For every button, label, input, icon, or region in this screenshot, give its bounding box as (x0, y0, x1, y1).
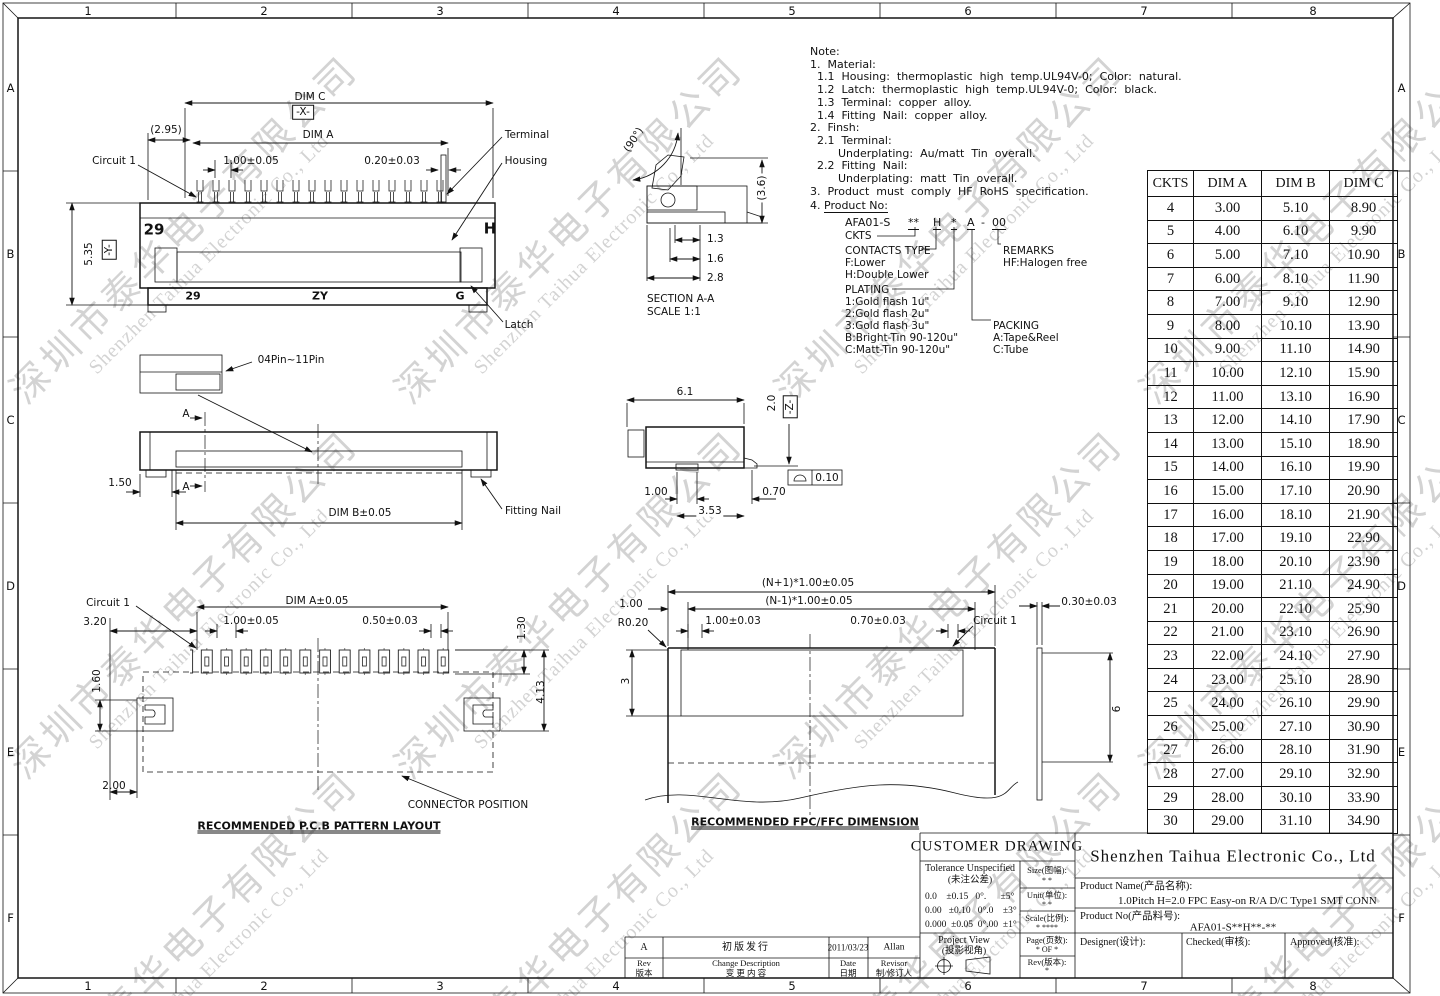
unit-value: * * (1042, 901, 1052, 909)
front-mark-29b: 29 (185, 291, 200, 302)
top-dim-150: 1.50 (108, 478, 131, 489)
pcb-connector-position: CONNECTOR POSITION (408, 800, 529, 811)
table-row: 2827.0029.1032.90 (1148, 763, 1398, 787)
table-cell: 20 (1148, 574, 1194, 598)
table-row: 1615.0017.1020.90 (1148, 480, 1398, 504)
zone-label-F: F (7, 911, 14, 925)
table-cell: 22.00 (1194, 645, 1262, 669)
table-cell: 13.10 (1262, 385, 1330, 409)
zone-label-8: 8 (1309, 4, 1316, 18)
table-cell: 34.90 (1330, 810, 1398, 834)
front-pitch: 1.00±0.05 (223, 156, 279, 167)
unit-label: Unit(单位): (1027, 891, 1067, 900)
top-section-a1: A (182, 409, 189, 420)
legend-packing-a: A:Tape&Reel (993, 333, 1059, 344)
product-code-remarks: 00 (992, 216, 1006, 230)
table-row: 1817.0019.1022.90 (1148, 527, 1398, 551)
table-cell: 14.10 (1262, 409, 1330, 433)
table-cell: 14.90 (1330, 338, 1398, 362)
table-cell: 29.90 (1330, 692, 1398, 716)
top-pins-label: 04Pin~11Pin (258, 355, 325, 366)
fpc-dim-100: 1.00 (619, 599, 642, 610)
table-row: 43.005.108.90 (1148, 197, 1398, 221)
table-cell: 17.90 (1330, 409, 1398, 433)
pcb-dim-320: 3.20 (83, 617, 106, 628)
zone-label-E: E (7, 745, 14, 759)
fpc-dim-6: 6 (1112, 706, 1123, 713)
table-cell: 23.00 (1194, 668, 1262, 692)
table-cell: 9.10 (1262, 291, 1330, 315)
section-scale: SCALE 1:1 (647, 307, 701, 318)
table-row: 65.007.1010.90 (1148, 244, 1398, 268)
table-cell: 15.90 (1330, 362, 1398, 386)
customer-drawing-title: CUSTOMER DRAWING (911, 840, 1083, 855)
table-cell: 21 (1148, 598, 1194, 622)
table-cell: 29 (1148, 786, 1194, 810)
legend-contacts-type: CONTACTS TYPE (845, 246, 931, 257)
tolerance-row-3: 0.000 ±0.05 0°.00 ±1° (925, 921, 1017, 931)
table-row: 1716.0018.1021.90 (1148, 503, 1398, 527)
zone-label-C: C (6, 413, 14, 427)
pcb-pad-width: 0.50±0.03 (362, 616, 418, 627)
table-row: 1110.0012.1015.90 (1148, 362, 1398, 386)
pcb-dim-200: 2.00 (102, 781, 125, 792)
table-cell: 21.90 (1330, 503, 1398, 527)
section-dim-13: 1.3 (707, 234, 724, 245)
zone-label-1: 1 (84, 4, 91, 18)
table-row: 2120.0022.1025.90 (1148, 598, 1398, 622)
product-no-label: Product No(产品料号): (1080, 912, 1180, 923)
legend-remarks-hf: HF:Halogen free (1003, 258, 1087, 269)
table-cell: 24.10 (1262, 645, 1330, 669)
table-cell: 16.10 (1262, 456, 1330, 480)
fpc-r020: R0.20 (618, 618, 649, 629)
table-cell: 10.90 (1330, 244, 1398, 268)
table-header-cell: DIM B (1262, 171, 1330, 197)
pcb-pitch: 1.00±0.05 (223, 616, 279, 627)
table-cell: 15.00 (1194, 480, 1262, 504)
zone-label-5: 5 (788, 979, 795, 993)
table-row: 2322.0024.1027.90 (1148, 645, 1398, 669)
dimension-table: CKTSDIM ADIM BDIM C43.005.108.9054.006.1… (1147, 170, 1398, 834)
rev-entry-date: 2011/03/23 (828, 944, 869, 953)
front-circuit1: Circuit 1 (92, 156, 136, 167)
table-row: 1312.0014.1017.90 (1148, 409, 1398, 433)
table-cell: 5.10 (1262, 197, 1330, 221)
table-cell: 25 (1148, 692, 1194, 716)
table-cell: 20.00 (1194, 598, 1262, 622)
front-dim-a: DIM A (303, 130, 334, 141)
size-label: Size(图幅): (1027, 866, 1067, 875)
table-cell: 23.90 (1330, 550, 1398, 574)
table-cell: 19 (1148, 550, 1194, 574)
table-cell: 15 (1148, 456, 1194, 480)
table-header-cell: DIM C (1330, 171, 1398, 197)
table-cell: 19.10 (1262, 527, 1330, 551)
side-dim-353: 3.53 (696, 506, 723, 517)
rev-entry-rev: A (640, 943, 647, 953)
fpc-title: RECOMMENDED FPC/FFC DIMENSION (691, 817, 919, 830)
scale-label: Scale(比例): (1025, 914, 1068, 923)
table-cell: 30 (1148, 810, 1194, 834)
table-cell: 9 (1148, 314, 1194, 338)
company-name: Shenzhen Taihua Electronic Co., Ltd (1090, 848, 1376, 865)
front-mark-h: H (484, 222, 497, 237)
table-cell: 16.90 (1330, 385, 1398, 409)
table-row: 2524.0026.1029.90 (1148, 692, 1398, 716)
table-cell: 7 (1148, 267, 1194, 291)
fpc-pitch: 1.00±0.03 (705, 616, 761, 627)
zone-label-1: 1 (84, 979, 91, 993)
table-cell: 22.10 (1262, 598, 1330, 622)
zone-label-5: 5 (788, 4, 795, 18)
zone-label-A: A (1398, 81, 1406, 95)
legend-plating-2: 2:Gold flash 2u" (845, 309, 929, 320)
table-cell: 24 (1148, 668, 1194, 692)
table-cell: 11.90 (1330, 267, 1398, 291)
table-cell: 20.90 (1330, 480, 1398, 504)
table-cell: 7.00 (1194, 291, 1262, 315)
rev-hd-rev-cn: 版本 (635, 969, 652, 978)
table-cell: 21.10 (1262, 574, 1330, 598)
rev-hd-desc-cn: 变 更 内 容 (726, 969, 766, 978)
table-cell: 13 (1148, 409, 1194, 433)
table-cell: 19.90 (1330, 456, 1398, 480)
table-cell: 31.90 (1330, 739, 1398, 763)
legend-remarks: REMARKS (1003, 246, 1054, 257)
table-cell: 7.10 (1262, 244, 1330, 268)
table-cell: 4 (1148, 197, 1194, 221)
front-mark-29: 29 (144, 223, 165, 238)
top-fitting-nail-label: Fitting Nail (505, 506, 561, 517)
product-code-packing: A (967, 216, 975, 230)
front-mark-zy: ZY (312, 291, 328, 302)
rev-label: Rev(版本): (1028, 958, 1067, 967)
table-cell: 23.10 (1262, 621, 1330, 645)
pcb-dim-160: 1.60 (92, 669, 103, 692)
zone-label-8: 8 (1309, 979, 1316, 993)
tolerance-title-cn: (未注公差) (948, 876, 992, 886)
size-value: * * (1042, 877, 1052, 885)
zone-label-E: E (1398, 745, 1405, 759)
rev-entry-desc: 初版发行 (722, 943, 770, 953)
table-cell: 9.00 (1194, 338, 1262, 362)
table-cell: 15.10 (1262, 432, 1330, 456)
table-cell: 25.00 (1194, 716, 1262, 740)
product-no-value: AFA01-S**H**-** (1190, 923, 1277, 934)
table-cell: 10 (1148, 338, 1194, 362)
table-cell: 8.10 (1262, 267, 1330, 291)
section-dim-16: 1.6 (707, 254, 724, 265)
table-row: 3029.0031.1034.90 (1148, 810, 1398, 834)
fpc-dim-3: 3 (621, 678, 632, 685)
table-row: 2726.0028.1031.90 (1148, 739, 1398, 763)
legend-ckts: CKTS (845, 231, 871, 242)
zone-label-4: 4 (612, 4, 619, 18)
table-cell: 32.90 (1330, 763, 1398, 787)
legend-plating-1: 1:Gold flash 1u" (845, 297, 929, 308)
zone-label-D: D (1397, 579, 1406, 593)
table-cell: 25.10 (1262, 668, 1330, 692)
legend-plating-b: B:Bright-Tin 90-120u" (845, 333, 958, 344)
side-flatness-value: 0.10 (815, 473, 838, 484)
table-cell: 9.90 (1330, 220, 1398, 244)
product-code-plating: * (951, 216, 957, 230)
rev-hd-desc-en: Change Description (712, 959, 780, 968)
table-row: 2625.0027.1030.90 (1148, 716, 1398, 740)
front-latch-label: Latch (505, 320, 534, 331)
table-cell: 16.00 (1194, 503, 1262, 527)
zone-label-B: B (1398, 247, 1406, 261)
table-cell: 28 (1148, 763, 1194, 787)
side-dim-20: 2.0 (767, 395, 778, 412)
table-cell: 26.00 (1194, 739, 1262, 763)
table-cell: 17.10 (1262, 480, 1330, 504)
table-cell: 14 (1148, 432, 1194, 456)
legend-packing-c: C:Tube (993, 345, 1028, 356)
zone-label-7: 7 (1140, 979, 1147, 993)
table-cell: 17.00 (1194, 527, 1262, 551)
table-cell: 13.90 (1330, 314, 1398, 338)
table-cell: 13.00 (1194, 432, 1262, 456)
page-value: * OF * (1036, 946, 1058, 954)
table-cell: 27 (1148, 739, 1194, 763)
front-terminal-width: 0.20±0.03 (364, 156, 420, 167)
note-line: 1.4 Fitting Nail: copper alloy. (810, 110, 1182, 123)
section-dim-28: 2.8 (707, 273, 724, 284)
table-header-cell: DIM A (1194, 171, 1262, 197)
fpc-n-minus: (N-1)*1.00±0.05 (763, 596, 854, 607)
note-line: Underplating: matt Tin overall. (810, 173, 1182, 186)
drawing-sheet: 深圳市泰华电子有限公司Shenzhen Taihua Electronic Co… (0, 0, 1440, 996)
note-line: 2.1 Terminal: (810, 135, 1182, 148)
table-cell: 26.90 (1330, 621, 1398, 645)
pcb-dim-a: DIM A±0.05 (286, 596, 349, 607)
zone-label-3: 3 (436, 979, 443, 993)
front-dim-295: (2.95) (150, 125, 182, 136)
tolerance-row-2: 0.00 ±0.10 0°.0 ±3° (925, 907, 1017, 917)
front-datum-x: -X- (292, 105, 314, 120)
side-dim-100: 1.00 (644, 487, 667, 498)
project-view-label: Project View (938, 936, 990, 946)
rev-hd-revisor-en: Revisor (881, 959, 907, 968)
zone-label-3: 3 (436, 4, 443, 18)
table-cell: 18 (1148, 527, 1194, 551)
table-cell: 6.10 (1262, 220, 1330, 244)
legend-plating: PLATING (845, 285, 889, 296)
front-mark-g: G (455, 291, 464, 302)
rev-hd-revisor-cn: 制/修订人 (876, 969, 912, 978)
table-cell: 18.00 (1194, 550, 1262, 574)
designer-label: Designer(设计): (1080, 938, 1146, 948)
scale-value: * **** (1036, 924, 1058, 932)
table-cell: 12.00 (1194, 409, 1262, 433)
legend-contacts-f: F:Lower (845, 258, 885, 269)
product-code-ckts: ** (908, 216, 919, 230)
front-datum-y: -Y- (102, 240, 117, 260)
note-line: 1.3 Terminal: copper alloy. (810, 97, 1182, 110)
table-cell: 28.90 (1330, 668, 1398, 692)
approved-label: Approved(核准): (1290, 938, 1359, 948)
note-line: 1.2 Latch: thermoplastic high temp.UL94V… (810, 84, 1182, 97)
zone-label-2: 2 (260, 4, 267, 18)
section-height-36: (3.6) (757, 174, 768, 203)
fpc-finger-width: 0.70±0.03 (850, 616, 906, 627)
project-view-label-cn: (投影视角) (942, 947, 986, 957)
notes-block: Note:1. Material: 1.1 Housing: thermopla… (810, 46, 1182, 198)
zone-label-7: 7 (1140, 4, 1147, 18)
legend-packing: PACKING (993, 321, 1039, 332)
section-name: SECTION A-A (647, 294, 714, 305)
table-cell: 8.00 (1194, 314, 1262, 338)
table-cell: 30.90 (1330, 716, 1398, 740)
top-section-a2: A (182, 482, 189, 493)
zone-label-2: 2 (260, 979, 267, 993)
product-code-base: AFA01-S (845, 216, 890, 229)
table-cell: 5.00 (1194, 244, 1262, 268)
table-cell: 33.90 (1330, 786, 1398, 810)
table-cell: 29.00 (1194, 810, 1262, 834)
fpc-circuit1: Circuit 1 (973, 616, 1017, 627)
side-dim-61: 6.1 (677, 387, 694, 398)
rev-hd-date-cn: 日期 (839, 969, 856, 978)
table-cell: 19.00 (1194, 574, 1262, 598)
front-housing-label: Housing (505, 156, 548, 167)
zone-label-D: D (6, 579, 15, 593)
product-code-dash: - (981, 216, 985, 229)
side-datum-z: -Z- (783, 396, 798, 419)
pcb-dim-413: 4.13 (536, 680, 547, 703)
table-cell: 18.10 (1262, 503, 1330, 527)
rev-hd-rev-en: Rev (637, 959, 651, 968)
table-cell: 28.10 (1262, 739, 1330, 763)
table-row: 1211.0013.1016.90 (1148, 385, 1398, 409)
legend-contacts-h: H:Double Lower (845, 270, 928, 281)
table-cell: 6.00 (1194, 267, 1262, 291)
note-line: 3. Product must comply HF RoHS specifica… (810, 186, 1182, 199)
pcb-dim-130: 1.30 (517, 616, 528, 639)
side-dim-070: 0.70 (762, 487, 785, 498)
table-cell: 11 (1148, 362, 1194, 386)
zone-label-A: A (7, 81, 15, 95)
note-item4-label: Product No: (824, 199, 888, 213)
zone-label-F: F (1398, 911, 1405, 925)
table-cell: 10.00 (1194, 362, 1262, 386)
zone-label-6: 6 (964, 4, 971, 18)
table-cell: 4.00 (1194, 220, 1262, 244)
notes-title: Note: (810, 46, 1182, 59)
table-cell: 12 (1148, 385, 1194, 409)
front-terminal-label: Terminal (505, 130, 549, 141)
table-row: 76.008.1011.90 (1148, 267, 1398, 291)
table-cell: 6 (1148, 244, 1194, 268)
table-cell: 27.90 (1330, 645, 1398, 669)
table-cell: 21.00 (1194, 621, 1262, 645)
fpc-n-plus: (N+1)*1.00±0.05 (760, 578, 856, 589)
table-cell: 22 (1148, 621, 1194, 645)
table-cell: 24.00 (1194, 692, 1262, 716)
table-cell: 8.90 (1330, 197, 1398, 221)
table-cell: 12.90 (1330, 291, 1398, 315)
fpc-thickness: 0.30±0.03 (1061, 597, 1117, 608)
table-cell: 28.00 (1194, 786, 1262, 810)
table-cell: 27.10 (1262, 716, 1330, 740)
page-label: Page(页数): (1026, 936, 1068, 945)
top-dim-b: DIM B±0.05 (327, 508, 394, 519)
table-cell: 22.90 (1330, 527, 1398, 551)
table-cell: 24.90 (1330, 574, 1398, 598)
checked-label: Checked(审核): (1186, 938, 1250, 948)
table-row: 2928.0030.1033.90 (1148, 786, 1398, 810)
table-cell: 14.00 (1194, 456, 1262, 480)
zone-label-B: B (7, 247, 15, 261)
table-cell: 29.10 (1262, 763, 1330, 787)
table-cell: 30.10 (1262, 786, 1330, 810)
table-row: 87.009.1012.90 (1148, 291, 1398, 315)
table-row: 2221.0023.1026.90 (1148, 621, 1398, 645)
table-cell: 20.10 (1262, 550, 1330, 574)
legend-plating-3: 3:Gold flash 3u" (845, 321, 929, 332)
product-name-value: 1.0Pitch H=2.0 FPC Easy-on R/A D/C Type1… (1118, 896, 1377, 907)
tolerance-title: Tolerance Unspecified (925, 864, 1015, 874)
zone-label-4: 4 (612, 979, 619, 993)
zone-label-C: C (1397, 413, 1405, 427)
front-dim-c: DIM C (295, 92, 326, 103)
note-item4: 4. Product No: (810, 200, 888, 211)
table-row: 1413.0015.1018.90 (1148, 432, 1398, 456)
zone-label-6: 6 (964, 979, 971, 993)
table-row: 1514.0016.1019.90 (1148, 456, 1398, 480)
product-code-type: H (933, 216, 941, 230)
pcb-circuit1: Circuit 1 (86, 598, 130, 609)
table-cell: 16 (1148, 480, 1194, 504)
product-name-label: Product Name(产品名称): (1080, 882, 1192, 893)
table-cell: 25.90 (1330, 598, 1398, 622)
table-row: 1918.0020.1023.90 (1148, 550, 1398, 574)
table-cell: 17 (1148, 503, 1194, 527)
table-header-cell: CKTS (1148, 171, 1194, 197)
legend-plating-c: C:Matt-Tin 90-120u" (845, 345, 950, 356)
table-cell: 27.00 (1194, 763, 1262, 787)
tolerance-row-1: 0.0 ±0.15 0°. ±5° (925, 893, 1014, 903)
table-row: 98.0010.1013.90 (1148, 314, 1398, 338)
table-row: 54.006.109.90 (1148, 220, 1398, 244)
table-cell: 11.00 (1194, 385, 1262, 409)
rev-entry-revisor: Allan (883, 943, 904, 953)
table-cell: 12.10 (1262, 362, 1330, 386)
table-cell: 10.10 (1262, 314, 1330, 338)
table-row: 109.0011.1014.90 (1148, 338, 1398, 362)
table-row: 2423.0025.1028.90 (1148, 668, 1398, 692)
table-row: 2019.0021.1024.90 (1148, 574, 1398, 598)
table-cell: 23 (1148, 645, 1194, 669)
pcb-title: RECOMMENDED P.C.B PATTERN LAYOUT (197, 821, 440, 834)
front-height-535: 5.35 (84, 242, 95, 265)
table-cell: 11.10 (1262, 338, 1330, 362)
table-cell: 5 (1148, 220, 1194, 244)
table-cell: 31.10 (1262, 810, 1330, 834)
table-cell: 3.00 (1194, 197, 1262, 221)
rev-hd-date-en: Date (840, 959, 856, 968)
table-cell: 26.10 (1262, 692, 1330, 716)
table-cell: 18.90 (1330, 432, 1398, 456)
rev-value: * (1045, 967, 1049, 975)
table-cell: 8 (1148, 291, 1194, 315)
table-cell: 26 (1148, 716, 1194, 740)
